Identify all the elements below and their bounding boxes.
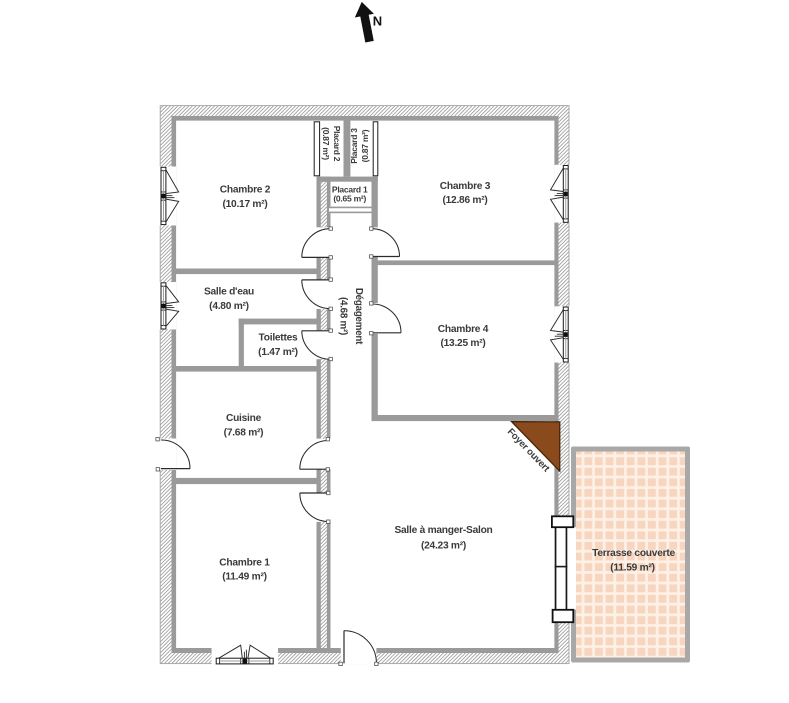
svg-text:(0.65 m²): (0.65 m²) — [333, 194, 366, 204]
svg-text:Chambre 3: Chambre 3 — [440, 181, 491, 192]
svg-text:Dégagement: Dégagement — [353, 288, 364, 345]
svg-text:(7.68 m²): (7.68 m²) — [224, 428, 264, 439]
svg-text:(10.17 m²): (10.17 m²) — [222, 199, 267, 210]
svg-text:Chambre 2: Chambre 2 — [220, 185, 271, 196]
svg-text:(1.47 m²): (1.47 m²) — [258, 347, 298, 358]
svg-text:Chambre 4: Chambre 4 — [438, 324, 489, 335]
svg-text:(12.86 m²): (12.86 m²) — [442, 195, 487, 206]
svg-text:(11.49 m²): (11.49 m²) — [222, 572, 267, 583]
svg-text:Terrasse couverte: Terrasse couverte — [592, 548, 675, 559]
svg-text:Placard 2: Placard 2 — [332, 126, 342, 162]
svg-text:Placard 3: Placard 3 — [349, 128, 359, 164]
svg-text:Toilettes: Toilettes — [259, 333, 298, 344]
svg-text:Salle à manger-Salon: Salle à manger-Salon — [394, 525, 492, 536]
svg-text:(0.87 m²): (0.87 m²) — [321, 127, 331, 160]
svg-text:Salle d'eau: Salle d'eau — [204, 287, 254, 298]
svg-text:(4.80 m²): (4.80 m²) — [209, 301, 249, 312]
svg-text:(0.87 m²): (0.87 m²) — [360, 129, 370, 162]
svg-text:(4.68 m²): (4.68 m²) — [338, 297, 349, 335]
svg-text:Cuisine: Cuisine — [226, 413, 262, 424]
svg-text:N: N — [373, 14, 382, 29]
svg-text:Chambre 1: Chambre 1 — [219, 558, 270, 569]
svg-text:(24.23 m²): (24.23 m²) — [421, 541, 466, 552]
svg-text:(11.59 m²): (11.59 m²) — [610, 563, 655, 574]
svg-text:(13.25 m²): (13.25 m²) — [440, 338, 485, 349]
